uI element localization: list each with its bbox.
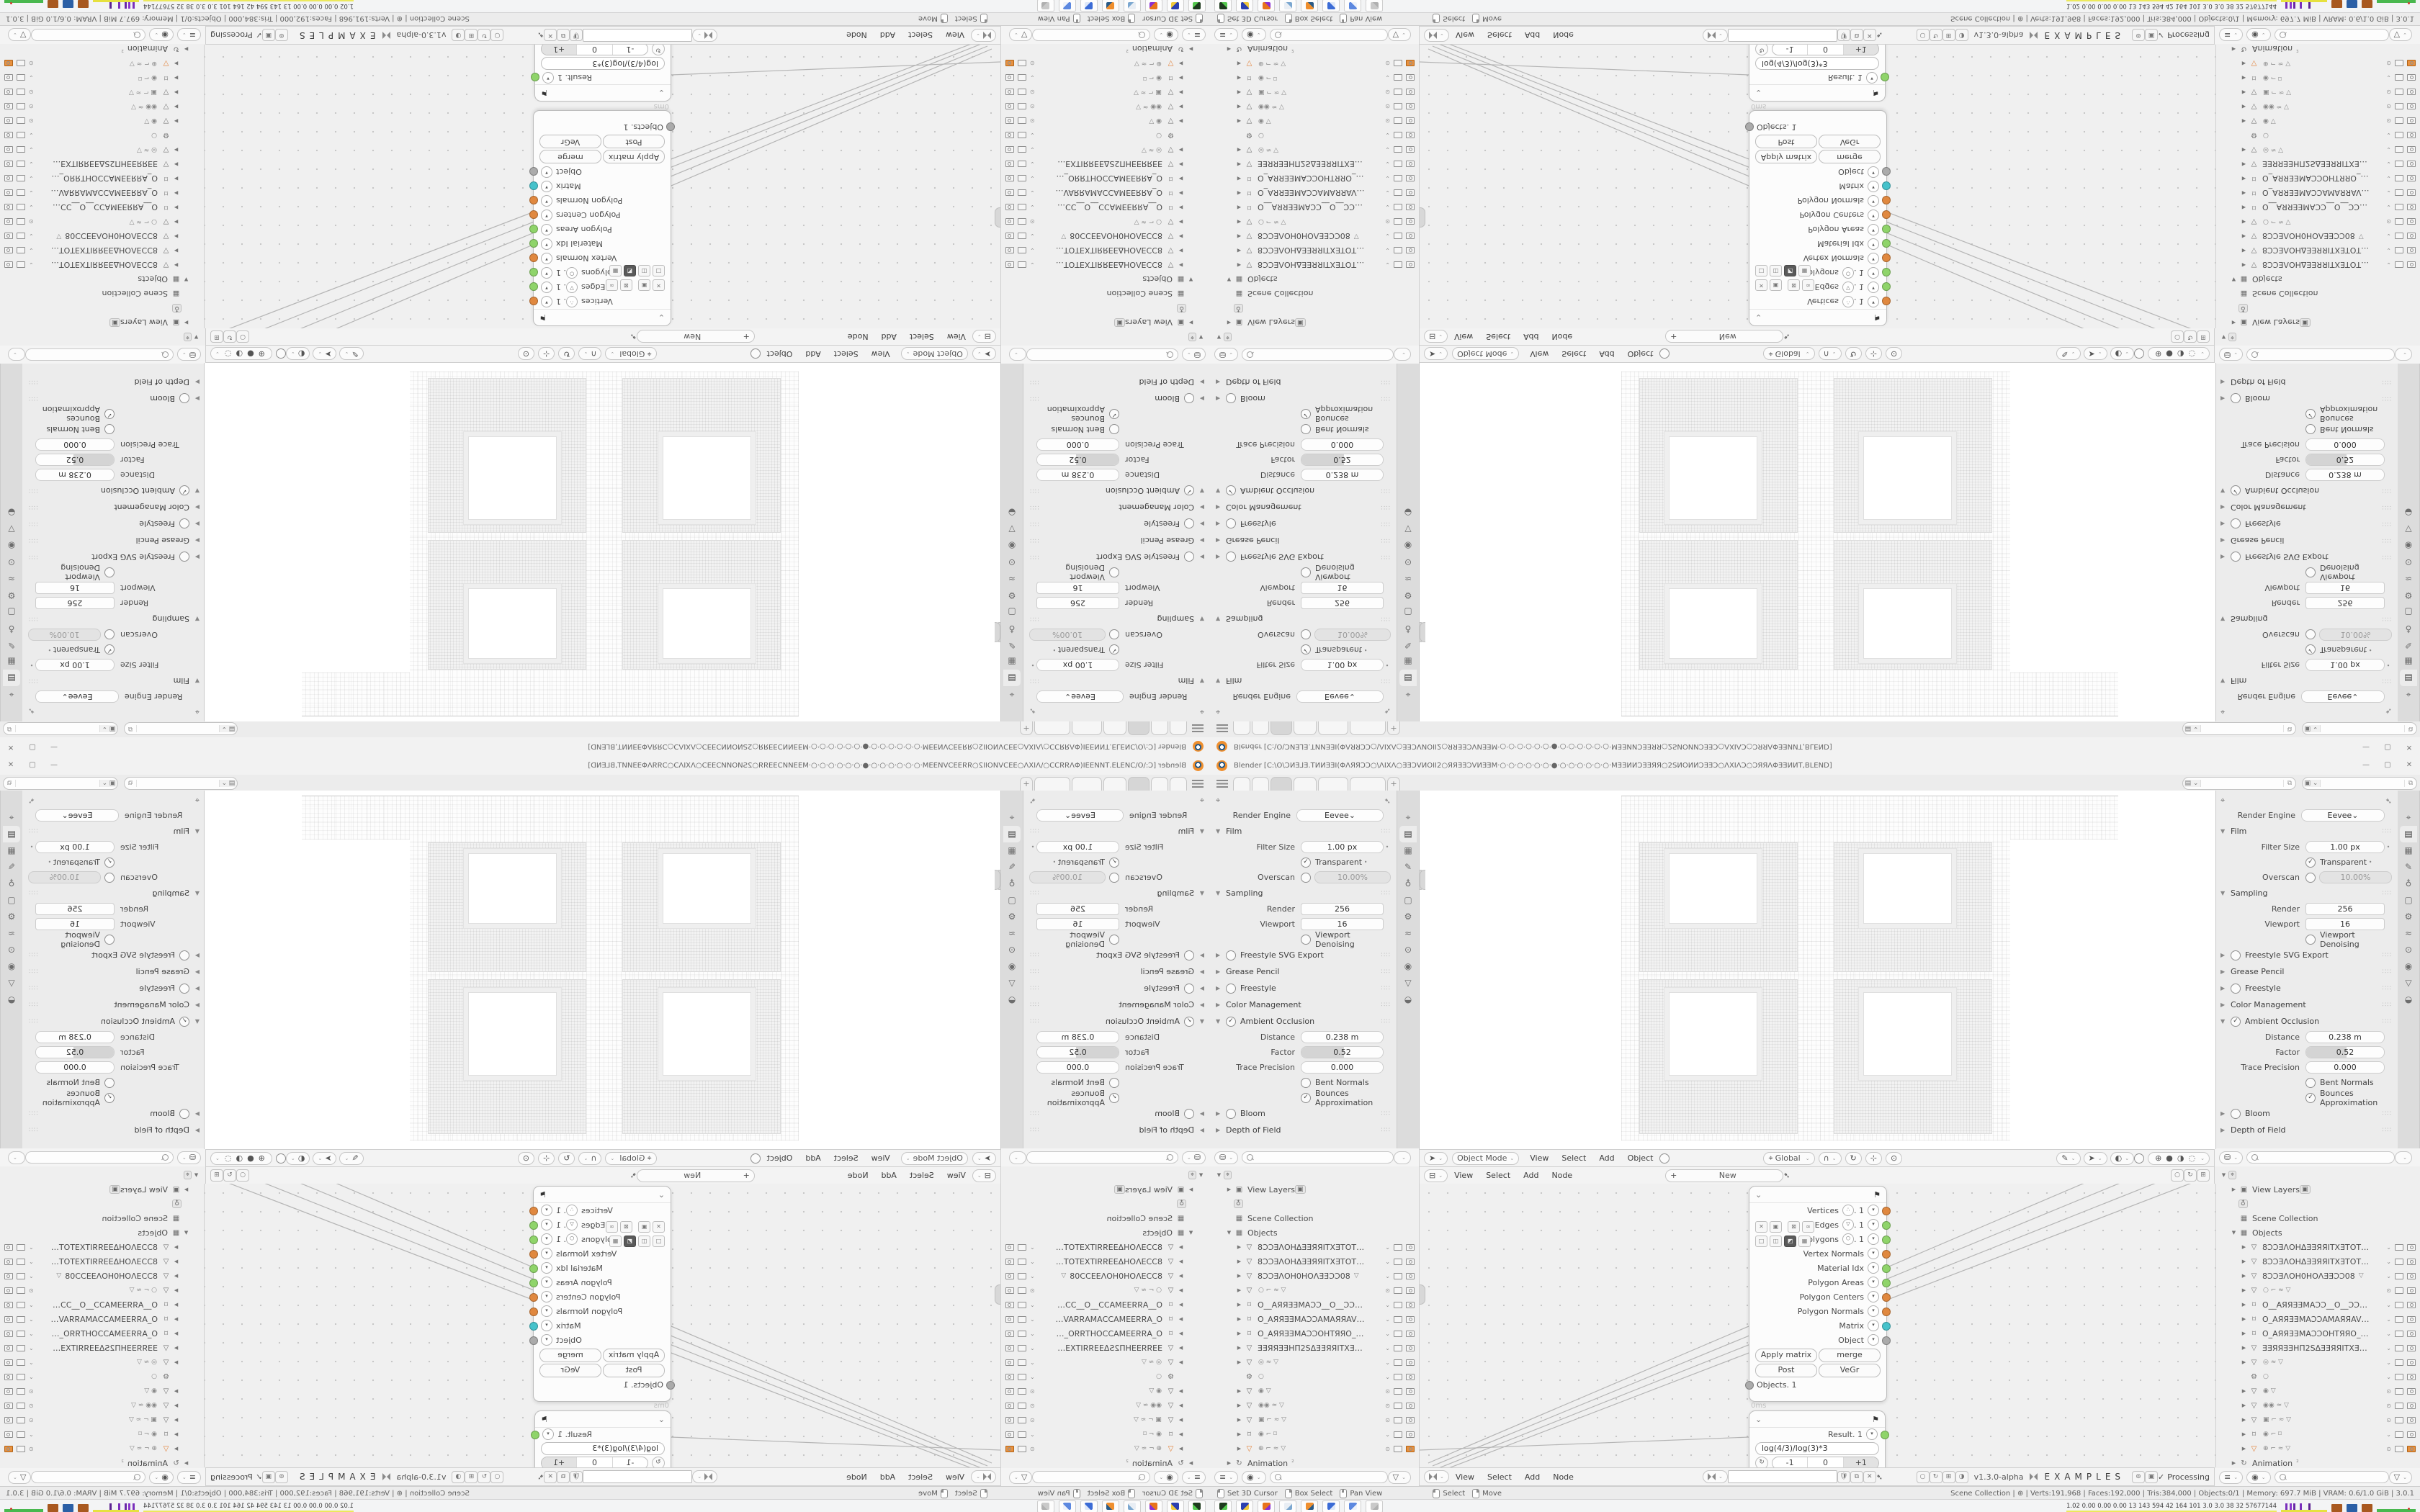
hide-toggle-icon[interactable]: ⌄ xyxy=(29,1259,34,1265)
render-disable-icon[interactable] xyxy=(4,190,13,197)
workspace-tab-6[interactable] xyxy=(1350,721,1386,735)
shading-mode-switch[interactable]: ⊕●◑◌⌄ xyxy=(210,1152,272,1165)
footer-mode-dropdown[interactable]: ≡⌄ xyxy=(177,1471,201,1484)
toggle-button[interactable]: ▦ xyxy=(1798,1236,1811,1247)
minimize-button[interactable]: — xyxy=(43,757,65,774)
properties-tab-icon-4[interactable]: ✎ xyxy=(3,636,20,653)
footer-gizmo-icon[interactable]: ○ xyxy=(490,1471,503,1483)
viewport-disable-icon[interactable] xyxy=(1394,1374,1402,1380)
properties-tab-icon-7[interactable]: ⚙ xyxy=(3,587,20,603)
section-checkbox[interactable] xyxy=(1184,984,1194,994)
section-ambient-occlusion[interactable]: ▼Ambient Occlusion∷∷ xyxy=(28,482,200,499)
viewport-disable-icon[interactable] xyxy=(2395,1403,2403,1409)
overlay-dropdown[interactable]: ◐⌄ xyxy=(286,348,310,361)
footer-gizmo-icon[interactable]: ○ xyxy=(1917,30,1930,42)
outliner-object-row[interactable]: ▶⌑O_AЯЯƎƎMAƆƆAMAЯЯAVИAΠ_O⌄ xyxy=(1214,1312,1416,1326)
footer-gizmo-icon[interactable]: ◑ xyxy=(1955,30,1968,42)
value-field-factor[interactable]: 0.52 xyxy=(35,1046,115,1058)
section-color-management[interactable]: ▶Color Management∷∷ xyxy=(1216,996,1391,1013)
hide-toggle-icon[interactable]: ⌄ xyxy=(1030,233,1035,240)
stepper--1[interactable]: -1 xyxy=(612,1457,647,1467)
outliner-object-row[interactable]: ▶⌑O__AЯЯƎƎMAƆƆ__O__ƆƆAMƎI⌄ xyxy=(1214,1297,1416,1312)
checkbox-bent-normals[interactable] xyxy=(104,425,115,435)
render-disable-icon[interactable] xyxy=(2407,262,2416,269)
value-field-distance[interactable]: 0.238 m xyxy=(1036,469,1119,481)
socket-dot[interactable] xyxy=(529,1293,538,1302)
viewport-disable-icon[interactable] xyxy=(2395,1316,2403,1323)
outliner-object-row[interactable]: ▶⌑◉ ⌐ ⌑⌄ xyxy=(3,71,201,85)
output-socket-row-material-idx[interactable]: Material Idx▾ xyxy=(534,237,671,251)
taskbar-recorder-app-icon[interactable] xyxy=(1214,1500,1232,1512)
socket-dot[interactable] xyxy=(529,210,538,219)
value-field-viewport[interactable]: 16 xyxy=(2305,918,2385,930)
outliner-object-row[interactable]: ▶▽◎ ≈ ▽⌄ xyxy=(1004,1355,1206,1369)
checkbox-bent-normals[interactable] xyxy=(2305,1078,2316,1088)
viewport-disable-icon[interactable] xyxy=(17,262,25,269)
output-socket-row-matrix[interactable]: Matrix▾ xyxy=(1749,1318,1886,1333)
viewport-disable-icon[interactable] xyxy=(17,1374,25,1380)
stepper--1[interactable]: -1 xyxy=(1773,1457,1808,1467)
outliner-object-row[interactable]: ▶▽8ƆƆƎΛOH0HOΛƎƎƆƆ08▽⌄ xyxy=(3,1269,201,1283)
node-menu-node[interactable]: Node xyxy=(846,1472,867,1482)
viewport-disable-icon[interactable] xyxy=(1018,1417,1026,1423)
viewport-disable-icon[interactable] xyxy=(1394,1446,1402,1452)
socket-dropdown-icon[interactable]: ▾ xyxy=(1868,1320,1879,1331)
tree-action-button[interactable]: 🛡 xyxy=(570,1471,583,1483)
outliner-row-Scene Collection[interactable]: ▦Scene Collection xyxy=(1004,1211,1206,1225)
properties-tab-icon-8[interactable]: ≈ xyxy=(1399,925,1417,942)
section-color-management[interactable]: ▶Color Management∷∷ xyxy=(28,996,200,1013)
socket-dropdown-icon[interactable]: ▾ xyxy=(1868,1262,1879,1274)
render-disable-icon[interactable] xyxy=(2407,1273,2416,1279)
render-disable-icon[interactable] xyxy=(2407,1431,2416,1438)
section-checkbox[interactable] xyxy=(1184,519,1194,529)
hide-toggle-icon[interactable]: ⌄ xyxy=(1030,190,1035,197)
render-disable-icon[interactable] xyxy=(2407,1316,2416,1323)
section-sampling[interactable]: ▼Sampling∷∷ xyxy=(28,885,200,901)
output-socket-row-material-idx[interactable]: Material Idx▾ xyxy=(1749,1261,1886,1275)
render-disable-icon[interactable] xyxy=(2407,1417,2416,1423)
render-disable-icon[interactable] xyxy=(1005,262,1014,269)
render-disable-icon[interactable] xyxy=(2407,1403,2416,1409)
footer-gizmo-icon[interactable]: ↻ xyxy=(1930,30,1942,42)
workspace-tab-6[interactable] xyxy=(1350,777,1386,791)
outliner-row-icon_only[interactable]: ♁ xyxy=(3,301,201,315)
viewport-disable-icon[interactable] xyxy=(17,1359,25,1366)
socket-dropdown-icon[interactable]: ▾ xyxy=(541,224,552,235)
toggle-button[interactable]: ▣ xyxy=(1770,1221,1782,1233)
value-field-filter-size[interactable]: 1.00 px xyxy=(1301,659,1384,671)
properties-tab-icon-10[interactable]: ◉ xyxy=(3,958,20,975)
section-checkbox[interactable] xyxy=(179,950,189,960)
section-depth-of-field[interactable]: ▶Depth of Field∷∷ xyxy=(2220,374,2392,390)
taskbar-calculator2-app-icon[interactable] xyxy=(1344,0,1361,12)
properties-tab-icon-2[interactable]: ▤ xyxy=(1399,670,1417,686)
viewport-disable-icon[interactable] xyxy=(1394,60,1402,67)
hide-toggle-icon[interactable]: ⌄ xyxy=(1030,161,1035,168)
scene-selector[interactable]: ▤ ⌄⧉ xyxy=(124,777,238,790)
hide-toggle-icon[interactable]: ⌄ xyxy=(2386,1331,2391,1337)
hide-toggle-icon[interactable]: ⊙ xyxy=(2386,1287,2391,1294)
viewport-disable-icon[interactable] xyxy=(17,204,25,211)
outliner-object-row[interactable]: ▶▽▣ ⌐ ≈ ▽⊙ xyxy=(1004,1413,1206,1427)
output-socket-row-polygon-areas[interactable]: Polygon Areas▾ xyxy=(534,1275,671,1290)
socket-dot[interactable] xyxy=(1882,1293,1891,1302)
viewport-header-icon[interactable]: ↻ xyxy=(558,1152,575,1165)
footer-gizmo-icon[interactable]: ↻ xyxy=(478,30,490,42)
value-field-filter-size[interactable]: 1.00 px xyxy=(35,659,115,671)
properties-tab-icon-4[interactable]: ✎ xyxy=(1399,859,1417,876)
snap-dropdown[interactable]: ∩⌄ xyxy=(578,348,601,361)
viewport-header-icon[interactable]: ⊙ xyxy=(1886,1152,1902,1165)
properties-tab-icon-2[interactable]: ▤ xyxy=(3,670,20,686)
viewport-disable-icon[interactable] xyxy=(1394,161,1402,168)
pin-icon[interactable]: ➴ xyxy=(2385,796,2392,806)
sverchok-editor-dropdown[interactable]: ⌄ xyxy=(971,1470,996,1483)
viewport-menu-view[interactable]: View xyxy=(871,349,890,359)
overlay-dropdown[interactable]: ➤⌄ xyxy=(2084,1152,2107,1165)
workspace-tab-2[interactable] xyxy=(1151,777,1168,791)
outliner-object-row[interactable]: ▶⌑◉ ⌐ ⌑⌄ xyxy=(3,1427,201,1441)
properties-tab-icon-7[interactable]: ⚙ xyxy=(1399,587,1417,603)
viewport-disable-icon[interactable] xyxy=(2395,104,2403,110)
render-disable-icon[interactable] xyxy=(1406,1431,1415,1438)
outliner-object-row[interactable]: ▶▽8ƆƆƎΛOH0HOΛƎƎƆƆ08▽⌄ xyxy=(2219,1269,2417,1283)
render-disable-icon[interactable] xyxy=(2407,233,2416,240)
hide-toggle-icon[interactable]: ⌄ xyxy=(29,1316,34,1323)
value-field-distance[interactable]: 0.238 m xyxy=(2305,1031,2385,1043)
socket-dot[interactable] xyxy=(1882,1250,1891,1259)
hide-toggle-icon[interactable]: ⌄ xyxy=(29,75,34,81)
input-socket-row[interactable]: Objects. 1 xyxy=(534,120,671,135)
socket-dropdown-icon[interactable]: ▾ xyxy=(1868,210,1879,221)
render-disable-icon[interactable] xyxy=(1406,1331,1415,1337)
viewport-disable-icon[interactable] xyxy=(1394,1287,1402,1294)
section-ambient-occlusion[interactable]: ▼Ambient Occlusion∷∷ xyxy=(28,1013,200,1030)
taskbar-calculator-app-icon[interactable] xyxy=(1080,0,1098,12)
shading-mode-switch[interactable]: ⊕●◑◌⌄ xyxy=(210,348,272,361)
render-disable-icon[interactable] xyxy=(4,1359,13,1366)
pin-icon[interactable]: ➴ xyxy=(1384,796,1391,806)
outliner-object-row[interactable]: ▶▽8ƆƆƎΛOHΔƎƎЯЯITXƎTOTƎƎXTI8⌄ xyxy=(2219,243,2417,258)
outliner-object-row[interactable]: ▶▽ƎƎЯЯƎƎHΠ2SΔƎƎЯЯITXƎTOTƎƎXTL⌄ xyxy=(3,1341,201,1355)
node-menu-add[interactable]: Add xyxy=(880,31,895,40)
output-socket-row-object[interactable]: Object▾ xyxy=(534,165,671,179)
socket-dot[interactable] xyxy=(1882,196,1891,204)
node-pull-tab[interactable] xyxy=(1420,1284,1425,1305)
pin-icon[interactable]: ➴ xyxy=(1384,707,1391,716)
checkbox-bent-normals[interactable] xyxy=(104,1078,115,1088)
render-disable-icon[interactable] xyxy=(2407,219,2416,225)
socket-dot[interactable] xyxy=(1745,1381,1754,1390)
render-disable-icon[interactable] xyxy=(1406,219,1415,225)
node-button-vegr[interactable]: VeGr xyxy=(1819,1364,1881,1377)
header-gizmo-icon[interactable]: ⊞ xyxy=(210,330,223,343)
properties-tab-icon-1[interactable]: ⌖ xyxy=(2400,809,2417,826)
checkbox-bent-normals[interactable] xyxy=(1301,425,1311,435)
render-disable-icon[interactable] xyxy=(2407,1388,2416,1395)
overlay-dropdown[interactable]: ➤⌄ xyxy=(313,1152,336,1165)
pin-icon[interactable]: ➴ xyxy=(630,332,637,341)
section-checkbox[interactable] xyxy=(1184,950,1194,960)
outliner-search-input[interactable] xyxy=(1242,348,1394,361)
value-field-render[interactable]: 256 xyxy=(2305,903,2385,915)
node-menu-add[interactable]: Add xyxy=(1523,1171,1538,1180)
section-checkbox[interactable] xyxy=(2231,1109,2241,1119)
taskbar-recorder-app-icon[interactable] xyxy=(1214,0,1232,12)
render-disable-icon[interactable] xyxy=(1005,118,1014,125)
checkbox-transparent[interactable] xyxy=(2305,858,2316,868)
viewport-disable-icon[interactable] xyxy=(1018,219,1026,225)
value-field-render[interactable]: 256 xyxy=(1036,597,1119,609)
checkbox-viewport-denoising[interactable] xyxy=(104,935,115,945)
section-depth-of-field[interactable]: ▶Depth of Field∷∷ xyxy=(2220,1122,2392,1138)
outliner-object-row[interactable]: ▶⌑◉ ⌐ ⌑⌄ xyxy=(2219,71,2417,85)
section-sampling[interactable]: ▼Sampling∷∷ xyxy=(1029,611,1204,627)
outliner-object-row[interactable]: ▶⌑O_AЯЯƎƎMAƆƆAMAЯЯAVИAΠ_O⌄ xyxy=(1004,1312,1206,1326)
hide-toggle-icon[interactable]: ⌄ xyxy=(2386,1259,2391,1265)
hide-toggle-icon[interactable]: ⌄ xyxy=(29,1374,34,1380)
render-disable-icon[interactable] xyxy=(1406,147,1415,153)
render-disable-icon[interactable] xyxy=(2407,161,2416,168)
checkbox-viewport-denoising[interactable] xyxy=(1109,568,1119,578)
section-checkbox[interactable] xyxy=(2231,486,2241,496)
close-button[interactable]: ✕ xyxy=(2398,738,2420,755)
workspace-tab-2[interactable] xyxy=(1252,777,1269,791)
outliner-search-input[interactable] xyxy=(1242,1151,1394,1164)
tree-action-button[interactable]: ✕ xyxy=(1863,30,1876,42)
socket-dropdown-icon[interactable]: ▾ xyxy=(1866,72,1878,84)
toggle-button[interactable]: ✕ xyxy=(1755,279,1767,291)
hide-toggle-icon[interactable]: ⌄ xyxy=(1385,147,1390,153)
properties-tab-icon-6[interactable]: ▢ xyxy=(3,603,20,620)
render-disable-icon[interactable] xyxy=(2407,89,2416,96)
outliner-object-row[interactable]: ▶▽8ƆƆƎΛOHΔƎƎЯЯITXƎTOTƎƎXTI8⌄ xyxy=(1004,1240,1206,1254)
outliner-row-tool[interactable]: ▼⌖ xyxy=(1004,1168,1206,1182)
outliner-object-row[interactable]: ▶▽⊕ ⌐ ≈ ▽⊙ xyxy=(1214,1441,1416,1456)
hide-toggle-icon[interactable]: ⌄ xyxy=(1030,176,1035,182)
render-engine-dropdown[interactable]: Eevee⌄ xyxy=(2301,809,2385,822)
viewport-disable-icon[interactable] xyxy=(1018,1388,1026,1395)
node-menu-add[interactable]: Add xyxy=(880,1472,895,1482)
socket-dot[interactable] xyxy=(1882,268,1891,276)
value-field-trace-precision[interactable]: 0.000 xyxy=(1301,1061,1384,1074)
socket-dropdown-icon[interactable]: ▾ xyxy=(541,1334,552,1346)
socket-dot[interactable] xyxy=(529,253,538,262)
viewport-menu-add[interactable]: Add xyxy=(1599,349,1614,359)
toggle-button[interactable]: ▣ xyxy=(1770,279,1782,291)
shading-mode-switch[interactable]: ⊕●◑◌⌄ xyxy=(2148,348,2210,361)
viewport-menu-object[interactable]: Object xyxy=(1628,349,1654,359)
shading-mode-switch[interactable]: ⊕●◑◌⌄ xyxy=(2148,1152,2210,1165)
shading-mode-icon[interactable]: ◌ xyxy=(2189,1153,2196,1163)
shading-mode-icon[interactable]: ⊕ xyxy=(2155,1153,2161,1163)
socket-dropdown-icon[interactable]: ▾ xyxy=(1868,296,1879,307)
viewport-menu-view[interactable]: View xyxy=(1530,349,1549,359)
socket-dot[interactable] xyxy=(529,282,538,291)
stepper-0[interactable]: 0 xyxy=(576,1457,611,1467)
socket-dot[interactable] xyxy=(529,1279,538,1287)
node-menu-view[interactable]: View xyxy=(947,332,966,341)
tree-action-button[interactable]: ✕ xyxy=(544,30,557,42)
hide-toggle-icon[interactable]: ⌄ xyxy=(2386,1359,2391,1366)
socket-dot[interactable] xyxy=(529,1308,538,1316)
node-menu-view[interactable]: View xyxy=(1456,31,1474,40)
node-button-post[interactable]: Post xyxy=(1755,135,1817,148)
taskbar-recorder-app-icon[interactable] xyxy=(1188,0,1206,12)
hide-toggle-icon[interactable]: ⌄ xyxy=(2386,1302,2391,1308)
outliner-object-row[interactable]: ▶▽◉◉ ≈ ▽⊙ xyxy=(1214,99,1416,114)
value-field-render[interactable]: 256 xyxy=(1301,903,1384,915)
footer-search-input[interactable] xyxy=(1270,29,1388,41)
node-editor-type-dropdown[interactable]: ⊟⌄ xyxy=(1424,330,1448,343)
formula-input[interactable]: log(4/3)/log(3)*3 xyxy=(1755,57,1879,70)
properties-tab-icon-4[interactable]: ✎ xyxy=(1399,636,1417,653)
tree-action-button[interactable]: ⧉ xyxy=(557,1471,570,1483)
hide-toggle-icon[interactable]: ⊙ xyxy=(1385,1388,1390,1395)
node-button-apply-matrix[interactable]: Apply matrix xyxy=(1755,150,1817,163)
socket-dot[interactable] xyxy=(529,225,538,233)
node-tree-name-input[interactable] xyxy=(1728,29,1837,42)
section-sampling[interactable]: ▼Sampling∷∷ xyxy=(1029,885,1204,901)
section-checkbox[interactable] xyxy=(2231,1017,2241,1027)
section-freestyle[interactable]: ▶Freestyle∷∷ xyxy=(1029,980,1204,996)
toggle-button[interactable]: ◩ xyxy=(624,1236,636,1247)
outliner-object-row[interactable]: ▶▽◎ ≈ ▽⌄ xyxy=(2219,1355,2417,1369)
hide-toggle-icon[interactable]: ⊙ xyxy=(29,1417,34,1423)
render-disable-icon[interactable] xyxy=(4,1259,13,1265)
socket-dropdown-icon[interactable]: ▾ xyxy=(1868,1305,1879,1317)
header-gizmo-icon[interactable]: ⊞ xyxy=(2197,330,2210,343)
outliner-row-tool[interactable]: ▼⌖ xyxy=(1004,330,1206,344)
checkbox-viewport-denoising[interactable] xyxy=(1301,568,1311,578)
footer-toggle-button[interactable]: ⊚ xyxy=(2132,30,2145,42)
properties-tab-icon-5[interactable]: ♁ xyxy=(1003,876,1021,892)
gizmo-circle[interactable] xyxy=(276,349,286,359)
render-disable-icon[interactable] xyxy=(4,1403,13,1409)
outliner-row-Scene Collection[interactable]: ▦Scene Collection xyxy=(1214,1211,1416,1225)
value-field-trace-precision[interactable]: 0.000 xyxy=(35,1061,115,1074)
overlay-dropdown[interactable]: ◐⌄ xyxy=(2110,1152,2134,1165)
outliner-object-row[interactable]: ▶⌑O_AЯЯƎƎMAƆƆOHTЯЯO_O_OЯTH⌄ xyxy=(3,1326,201,1341)
outliner-object-row[interactable]: ▶⌑O_AЯЯƎƎMAƆƆAMAЯЯAVИAΠ_O⌄ xyxy=(2219,1312,2417,1326)
section-checkbox[interactable] xyxy=(2231,950,2241,960)
refresh-icon[interactable]: ↻ xyxy=(652,45,665,55)
sverchok-editor-dropdown[interactable]: ⌄ xyxy=(1424,29,1449,42)
value-field-factor[interactable]: 0.52 xyxy=(1036,1046,1119,1058)
render-disable-icon[interactable] xyxy=(2407,147,2416,153)
outliner-row-icon_only[interactable]: ♁ xyxy=(1214,1197,1416,1211)
value-field-filter-size[interactable]: 1.00 px xyxy=(1036,659,1119,671)
outliner-object-row[interactable]: ▶▽◉◉ ≈ ▽⊙ xyxy=(2219,1398,2417,1413)
hide-toggle-icon[interactable]: ⊙ xyxy=(1385,219,1390,225)
socket-dot[interactable] xyxy=(1882,1279,1891,1287)
toggle-button[interactable]: ▣ xyxy=(638,1221,650,1233)
toggle-button[interactable]: ⊠ xyxy=(1788,279,1800,291)
workspace-tab-4[interactable] xyxy=(1103,777,1126,791)
sverchok-objects-node[interactable]: ⌄⚑Vertices∴. 1▾Edges▽. 1▾Polygons⬡. 1▾Ve… xyxy=(533,1186,671,1402)
properties-tab-icon-11[interactable]: ▽ xyxy=(1003,521,1021,537)
outliner-object-row[interactable]: ▶▽8ƆƆƎΛOH0HOΛƎƎƆƆ08▽⌄ xyxy=(3,229,201,243)
properties-tab-icon-7[interactable]: ⚙ xyxy=(1003,909,1021,925)
sverchok-editor-dropdown[interactable]: ⌄ xyxy=(971,29,996,42)
viewport-disable-icon[interactable] xyxy=(1018,1316,1026,1323)
hide-toggle-icon[interactable]: ⌄ xyxy=(1030,1374,1035,1380)
properties-tab-icon-7[interactable]: ⚙ xyxy=(3,909,20,925)
viewport-disable-icon[interactable] xyxy=(1394,176,1402,182)
minimize-button[interactable]: — xyxy=(43,738,65,755)
properties-tab-icon-6[interactable]: ▢ xyxy=(1003,892,1021,909)
hide-toggle-icon[interactable]: ⌄ xyxy=(2386,204,2391,211)
viewport-disable-icon[interactable] xyxy=(2395,1431,2403,1438)
sverchok-editor-dropdown[interactable]: ⌄ xyxy=(1424,1470,1449,1483)
section-depth-of-field[interactable]: ▶Depth of Field∷∷ xyxy=(1216,374,1391,390)
overlay-dropdown[interactable]: ✎⌄ xyxy=(340,1152,364,1165)
section-freestyle[interactable]: ▶Freestyle∷∷ xyxy=(1216,980,1391,996)
viewport-disable-icon[interactable] xyxy=(17,1244,25,1251)
node-menu-select[interactable]: Select xyxy=(910,332,934,341)
output-socket-row-vertices[interactable]: Vertices∴. 1▾ xyxy=(1749,294,1886,309)
properties-tab-icon-6[interactable]: ▢ xyxy=(2400,892,2417,909)
stepper-0[interactable]: 0 xyxy=(1808,1457,1843,1467)
outliner-object-row[interactable]: ▶▽8ƆƆƎΛOHΔƎƎЯЯITXƎTOTƎƎXTI8⌄ xyxy=(2219,1240,2417,1254)
socket-dropdown-icon[interactable]: ▾ xyxy=(541,166,552,178)
outliner-object-row[interactable]: ▶⌑O__AЯЯƎƎMAƆƆ__O__ƆƆAMƎI⌄ xyxy=(3,1297,201,1312)
properties-tab-icon-4[interactable]: ✎ xyxy=(3,859,20,876)
section-depth-of-field[interactable]: ▶Depth of Field∷∷ xyxy=(1029,1122,1204,1138)
section-ambient-occlusion[interactable]: ▼Ambient Occlusion∷∷ xyxy=(1029,482,1204,499)
properties-tab-icon-11[interactable]: ▽ xyxy=(1399,521,1417,537)
pin-icon[interactable]: ➴ xyxy=(28,796,35,806)
hide-toggle-icon[interactable]: ⊙ xyxy=(2386,219,2391,225)
outliner-object-row[interactable]: ▶▽○ ⌐ ≈ ▽⊙ xyxy=(1004,215,1206,229)
orientation-dropdown[interactable]: ⌖Global⌄ xyxy=(605,1152,656,1165)
outliner-row-icon_only[interactable]: ♁ xyxy=(2219,301,2417,315)
hide-toggle-icon[interactable]: ⌄ xyxy=(1030,1345,1035,1351)
pin-icon[interactable]: ➴ xyxy=(1876,1472,1883,1482)
render-disable-icon[interactable] xyxy=(2407,1345,2416,1351)
snap-dropdown[interactable]: ∩⌄ xyxy=(578,1152,601,1165)
hide-toggle-icon[interactable]: ⊙ xyxy=(29,1446,34,1452)
outliner-object-row[interactable]: ▶▽◉◉ ≈ ▽⊙ xyxy=(3,1398,201,1413)
section-grease-pencil[interactable]: ▶Grease Pencil∷∷ xyxy=(1029,532,1204,549)
render-disable-icon[interactable] xyxy=(1005,1374,1014,1380)
output-socket-row-object[interactable]: Object▾ xyxy=(1749,1333,1886,1347)
checkbox-bounces-approximation[interactable] xyxy=(2305,410,2316,420)
section-sampling[interactable]: ▼Sampling∷∷ xyxy=(1216,885,1391,901)
section-checkbox[interactable] xyxy=(1184,552,1194,562)
shading-mode-icon[interactable]: ⊕ xyxy=(2155,349,2161,359)
render-disable-icon[interactable] xyxy=(2407,1359,2416,1366)
view-layer-selector[interactable]: ▣ ⌄⧉ xyxy=(3,722,118,735)
workspace-tab-3[interactable] xyxy=(1128,777,1149,791)
footer-search-input[interactable] xyxy=(1032,29,1150,41)
value-field[interactable]: 10.00% xyxy=(2319,629,2392,641)
render-disable-icon[interactable] xyxy=(1406,89,1415,96)
properties-tab-icon-4[interactable]: ✎ xyxy=(2400,859,2417,876)
output-socket-row-vertices[interactable]: Vertices∴. 1▾ xyxy=(534,294,671,309)
section-depth-of-field[interactable]: ▶Depth of Field∷∷ xyxy=(28,374,200,390)
section-sampling[interactable]: ▼Sampling∷∷ xyxy=(28,611,200,627)
viewport-menu-view[interactable]: View xyxy=(1530,1153,1549,1163)
tree-action-button[interactable]: ⧉ xyxy=(1850,30,1863,42)
section-checkbox[interactable] xyxy=(1184,486,1194,496)
input-socket-row[interactable]: Objects. 1 xyxy=(1749,120,1886,135)
properties-tab-icon-12[interactable]: ◒ xyxy=(1399,991,1417,1008)
new-node-tree-button[interactable]: +New xyxy=(637,1169,755,1182)
properties-tab-icon-9[interactable]: ⊙ xyxy=(1003,942,1021,958)
outliner-mode-dropdown[interactable]: ⛁⌄ xyxy=(2219,348,2243,361)
